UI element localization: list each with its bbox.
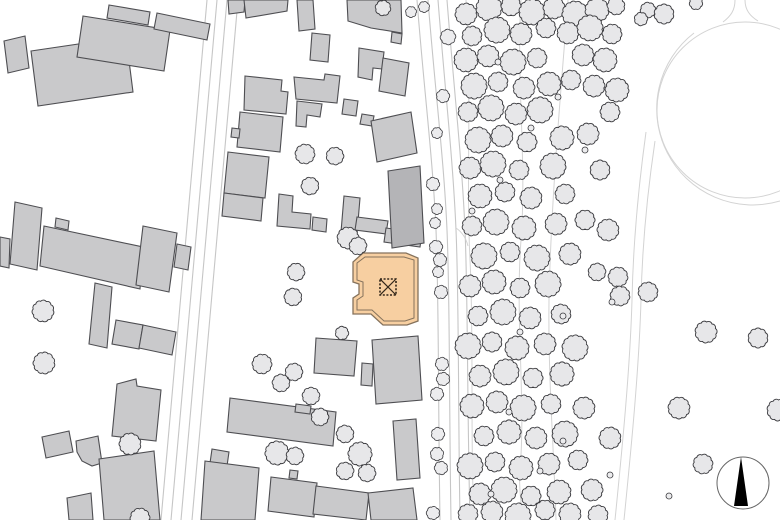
tree-symbol — [695, 321, 717, 343]
small-tree-symbol — [430, 448, 443, 461]
building-footprint — [4, 36, 29, 73]
highlighted-building[interactable] — [353, 253, 418, 325]
tree-symbol — [482, 332, 501, 352]
tree-symbol — [493, 359, 519, 385]
building-footprint — [368, 488, 417, 520]
shrub-dot — [560, 438, 566, 444]
park-path-line — [745, 0, 758, 21]
tree-symbol — [575, 210, 595, 229]
tree-symbol — [468, 306, 488, 326]
tree-symbol — [524, 245, 550, 271]
building-footprint — [67, 493, 93, 520]
building-footprint — [89, 283, 112, 348]
tree-symbol — [458, 102, 478, 122]
building-footprint — [289, 470, 298, 479]
building-footprint — [10, 202, 42, 270]
tree-symbol — [545, 213, 567, 235]
building-footprint — [139, 325, 176, 355]
tree-symbol — [534, 333, 556, 355]
building-footprint — [312, 217, 327, 232]
tree-symbol — [520, 187, 542, 209]
tree-symbol — [284, 288, 302, 306]
tree-symbol — [469, 365, 491, 387]
shrub-dot — [582, 147, 588, 153]
tree-symbol — [488, 72, 508, 92]
tree-symbol — [462, 216, 482, 236]
small-tree-symbol — [432, 204, 443, 215]
shrub-dot — [666, 493, 672, 499]
small-tree-symbol — [429, 240, 442, 253]
plaza-outer-arc — [657, 33, 780, 205]
building-footprint — [228, 0, 245, 14]
tree-symbol — [561, 70, 581, 90]
tree-symbol — [540, 153, 566, 179]
building-footprint — [112, 320, 143, 349]
tree-symbol — [517, 132, 537, 151]
building-footprint — [112, 379, 161, 441]
tree-symbol — [568, 450, 588, 470]
tree-symbol — [572, 44, 594, 66]
small-tree-symbol — [434, 461, 447, 474]
tree-symbol — [509, 160, 529, 180]
tree-symbol — [286, 447, 304, 465]
park-path-line — [624, 141, 655, 520]
tree-symbol — [349, 237, 367, 255]
tree-symbol — [302, 387, 320, 404]
tree-symbol — [301, 177, 319, 195]
small-tree-symbol — [426, 177, 439, 190]
tree-symbol — [588, 263, 606, 281]
tree-symbol — [495, 182, 515, 202]
tree-symbol — [335, 326, 348, 339]
north-arrow — [717, 457, 769, 509]
tree-symbol — [509, 456, 533, 480]
tree-symbol — [326, 147, 344, 165]
tree-symbol — [455, 333, 481, 359]
small-tree-symbol — [437, 89, 450, 102]
building-footprint — [358, 48, 384, 80]
tree-symbol — [527, 97, 553, 123]
tree-symbol — [455, 3, 477, 25]
tree-symbol — [491, 477, 517, 503]
tree-symbol — [527, 48, 547, 68]
tree-symbol — [748, 328, 767, 348]
tree-symbol — [559, 503, 581, 520]
building-footprint — [237, 112, 283, 152]
building-footprint — [372, 336, 422, 404]
tree-symbol — [458, 504, 478, 520]
tree-symbol — [577, 15, 603, 41]
tree-symbol — [608, 267, 628, 287]
building-footprint — [244, 0, 288, 18]
tree-symbol — [295, 144, 315, 164]
tree-symbol — [583, 75, 605, 97]
building-footprint — [379, 58, 409, 96]
tree-symbol — [654, 4, 673, 24]
tree-symbol — [505, 103, 527, 125]
shrub-dot — [517, 329, 523, 335]
tree-symbol — [490, 299, 516, 325]
building-footprint — [371, 112, 417, 162]
small-tree-symbol — [433, 254, 446, 267]
tree-symbol — [523, 368, 543, 387]
small-tree-symbol — [436, 372, 449, 385]
building-footprint — [314, 338, 357, 376]
tree-symbol — [689, 0, 702, 9]
tree-symbol — [593, 48, 617, 72]
tree-symbol — [311, 408, 329, 426]
tree-symbol — [600, 102, 620, 122]
building-footprint — [388, 166, 424, 248]
tree-symbol — [336, 462, 354, 480]
shrub-dot — [497, 177, 503, 183]
tree-symbol — [536, 18, 556, 38]
building-footprint — [224, 152, 269, 198]
building-footprint — [40, 226, 143, 289]
small-tree-symbol — [440, 29, 456, 45]
tree-symbol — [375, 0, 390, 15]
small-tree-symbol — [418, 2, 429, 13]
tree-symbol — [287, 263, 305, 281]
tree-symbol — [607, 0, 625, 15]
tree-symbol — [285, 363, 302, 381]
tree-symbol — [484, 17, 510, 43]
tree-symbol — [457, 453, 483, 479]
tree-symbol — [668, 397, 690, 419]
building-footprint — [201, 461, 259, 520]
tree-symbol — [559, 243, 581, 265]
tree-symbol — [358, 464, 376, 482]
building-footprint — [222, 193, 263, 221]
tree-symbol — [468, 184, 492, 208]
tree-symbol — [483, 209, 509, 235]
tree-symbol — [461, 73, 487, 99]
tree-symbol — [590, 160, 609, 180]
tree-symbol — [562, 335, 588, 361]
tree-symbol — [513, 77, 535, 99]
shrub-dot — [495, 59, 501, 65]
building-footprint — [294, 74, 340, 103]
tree-symbol — [537, 72, 561, 96]
shrub-dot — [488, 491, 494, 497]
tree-symbol — [500, 242, 520, 262]
tree-symbol — [634, 12, 647, 25]
plaza-circle — [657, 22, 780, 198]
small-tree-symbol — [435, 357, 448, 370]
building-footprint — [136, 226, 177, 292]
building-footprint — [310, 33, 330, 62]
building-footprint — [268, 477, 317, 517]
tree-symbol — [638, 282, 658, 302]
building-footprint — [347, 0, 402, 33]
tree-symbol — [543, 0, 565, 19]
building-footprint — [296, 101, 322, 127]
small-tree-symbol — [426, 506, 439, 519]
building-footprint — [393, 419, 420, 480]
tree-symbol — [550, 126, 574, 150]
small-tree-symbol — [432, 267, 443, 278]
tree-symbol — [547, 480, 571, 504]
building-footprint — [55, 218, 69, 230]
building-footprint — [355, 217, 388, 234]
building-footprint — [76, 436, 102, 466]
building-footprint — [313, 486, 369, 520]
small-tree-symbol — [429, 218, 440, 229]
tree-symbol — [588, 505, 608, 520]
tree-symbol — [486, 391, 508, 413]
building-footprint — [0, 237, 10, 268]
tree-symbol — [510, 23, 532, 45]
building-footprint — [231, 128, 240, 138]
tree-symbol — [460, 394, 484, 418]
tree-symbol — [535, 271, 561, 297]
tree-symbol — [767, 399, 780, 421]
street-edge-line — [192, 0, 238, 520]
tree-symbol — [478, 95, 504, 121]
tree-symbol — [336, 425, 354, 443]
tree-symbol — [485, 452, 505, 472]
tree-symbol — [33, 352, 55, 374]
tree-symbol — [465, 127, 491, 153]
tree-symbol — [510, 278, 530, 298]
tree-symbol — [471, 243, 497, 269]
tree-symbol — [512, 216, 536, 240]
tree-symbol — [480, 151, 506, 177]
shrub-dot — [469, 208, 475, 214]
tree-symbol — [474, 426, 494, 446]
tree-symbol — [505, 336, 529, 360]
site-plan-canvas — [0, 0, 780, 520]
tree-symbol — [348, 442, 372, 466]
small-tree-symbol — [430, 387, 443, 400]
tree-symbol — [462, 26, 482, 46]
tree-symbol — [481, 501, 503, 520]
tree-symbol — [535, 500, 555, 519]
small-tree-symbol — [431, 128, 442, 139]
tree-symbol — [577, 123, 599, 145]
shrub-dot — [607, 472, 613, 478]
building-footprint — [361, 363, 373, 386]
park-path-line — [615, 132, 646, 520]
tree-symbol — [599, 427, 621, 449]
tree-symbol — [252, 354, 272, 374]
building-footprint — [174, 244, 191, 270]
building-footprint — [342, 99, 358, 116]
shrub-dot — [537, 468, 543, 474]
tree-symbol — [555, 184, 575, 204]
tree-symbol — [482, 270, 506, 294]
tree-symbol — [602, 24, 622, 44]
shrub-dot — [609, 299, 615, 305]
tree-symbol — [500, 49, 526, 75]
tree-symbol — [497, 420, 521, 444]
park-path-line — [723, 0, 735, 22]
shrub-dot — [528, 125, 534, 131]
tree-symbol — [454, 48, 478, 72]
building-footprint — [297, 0, 315, 31]
tree-symbol — [693, 454, 713, 474]
tree-symbol — [573, 397, 595, 419]
tree-symbol — [581, 479, 603, 501]
tree-symbol — [459, 275, 481, 297]
tree-symbol — [519, 307, 541, 329]
building-footprint — [295, 404, 311, 414]
building-footprint — [277, 194, 311, 229]
shrub-dot — [506, 409, 512, 415]
tree-symbol — [605, 78, 629, 102]
small-tree-symbol — [434, 285, 447, 298]
tree-symbol — [525, 427, 547, 449]
site-plan-viewport — [0, 0, 780, 520]
building-footprint — [99, 451, 160, 520]
small-tree-symbol — [406, 7, 417, 18]
building-footprint — [244, 76, 288, 114]
tree-symbol — [597, 219, 619, 241]
tree-symbol — [510, 395, 536, 421]
tree-symbol — [550, 362, 574, 386]
building-footprint — [391, 32, 402, 44]
tree-symbol — [32, 300, 54, 322]
building-footprint — [42, 431, 73, 458]
tree-symbol — [265, 441, 289, 465]
shrub-dot — [555, 94, 561, 100]
tree-symbol — [491, 125, 513, 147]
tree-symbol — [459, 157, 481, 179]
tree-symbol — [501, 0, 521, 16]
small-tree-symbol — [432, 427, 445, 440]
tree-symbol — [541, 394, 561, 414]
tree-symbol — [119, 433, 141, 455]
shrub-dot — [560, 313, 566, 319]
